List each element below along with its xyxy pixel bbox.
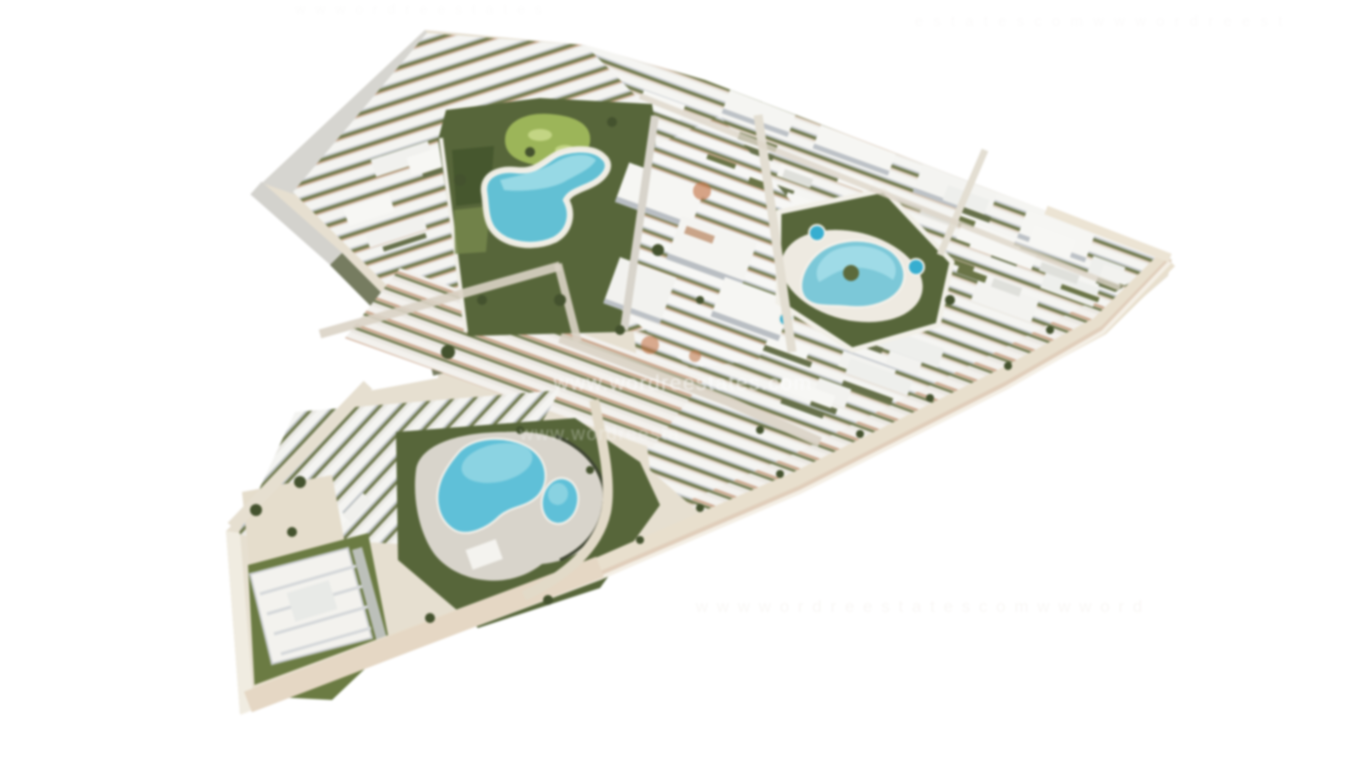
svg-text:www.wordreesta: www.wordreesta [519, 424, 680, 445]
svg-text:w w w w o r d r e e s t a t e: w w w w o r d r e e s t a t e s c o m w … [695, 597, 1144, 616]
svg-text:e s t a t e s c o m w w w o r: e s t a t e s c o m w w w o r d r e e s … [915, 13, 1286, 30]
svg-text:www.wordreestates.com: www.wordreestates.com [552, 372, 812, 395]
svg-text:w w w o r d r e e s t a t e s: w w w o r d r e e s t a t e s [294, 1, 545, 17]
